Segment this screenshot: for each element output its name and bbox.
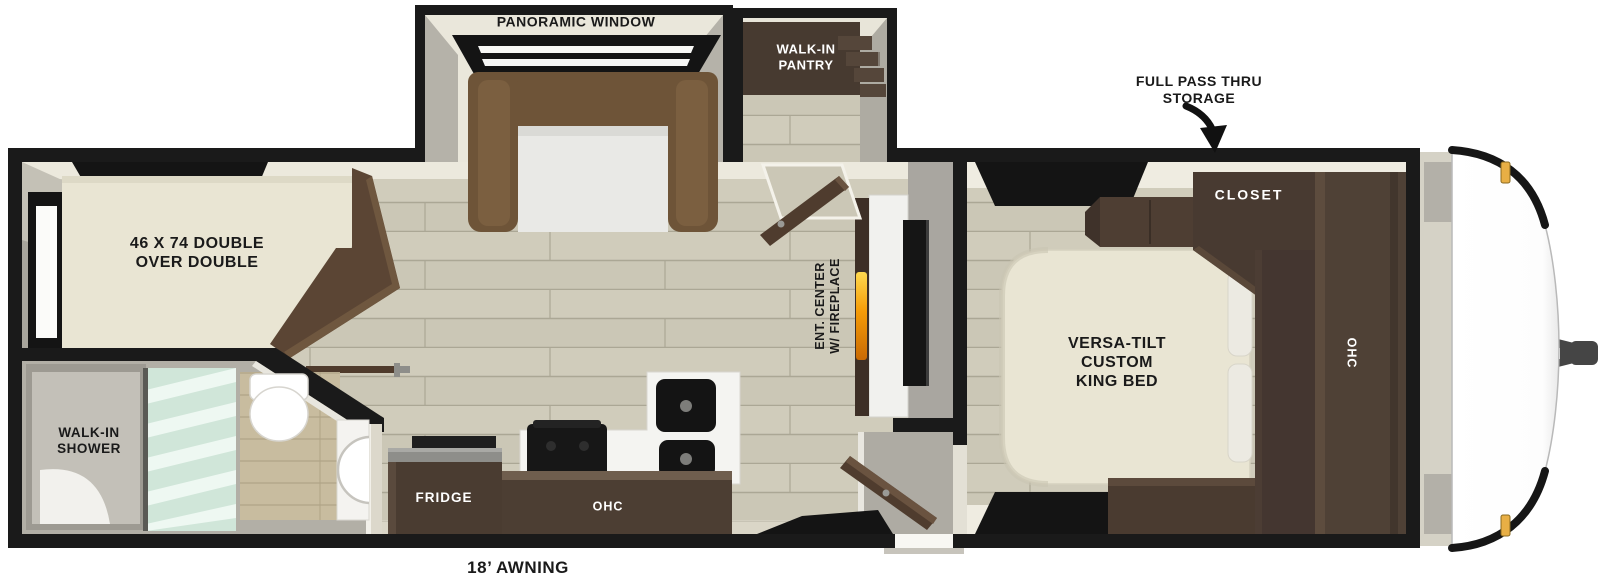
- bunk-left-window: [28, 192, 66, 352]
- toilet: [250, 374, 308, 441]
- front-cap: [1452, 150, 1559, 548]
- king-bed: [1002, 250, 1250, 484]
- storage-arrow: [1186, 106, 1227, 153]
- shower-glass-door: [143, 368, 236, 531]
- walk-in-pantry: [733, 8, 897, 162]
- sofa: [468, 72, 718, 232]
- bedside-cabinet-top: [1085, 197, 1200, 247]
- ent-center: [855, 162, 953, 420]
- kitchen-sink: [656, 379, 716, 478]
- fridge: [388, 436, 502, 534]
- pass-thru-storage-area: [1418, 152, 1454, 546]
- bedroom-wall: [953, 162, 967, 445]
- bedroom-ohc-wardrobe: [1315, 172, 1406, 534]
- marker-light-bottom: [1501, 515, 1510, 536]
- bedside-cabinet-bottom: [1108, 478, 1258, 534]
- floorplan-drawing: [0, 0, 1600, 581]
- marker-light-top: [1501, 162, 1510, 183]
- walk-in-shower: [26, 364, 146, 530]
- tv: [903, 220, 929, 386]
- bedroom: [967, 162, 1406, 534]
- panoramic-window: [452, 35, 721, 74]
- floorplan-page: PANORAMIC WINDOW WALK-IN PANTRY FULL PAS…: [0, 0, 1600, 581]
- kitchen-ohc-cabinet: [502, 471, 732, 534]
- fireplace-flame: [856, 272, 867, 360]
- pillow: [1228, 364, 1252, 462]
